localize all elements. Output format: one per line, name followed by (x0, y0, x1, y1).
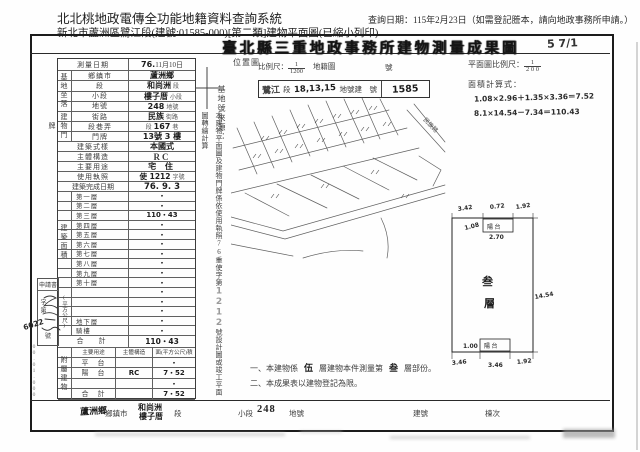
value-handwritten: 和尚洲 (147, 81, 171, 90)
row-value: 段 167 巷 (128, 122, 195, 131)
scale-denominator: 1200 (288, 68, 305, 76)
row-label: 門牌 (71, 132, 128, 141)
row-value: 蘆洲鄉 (128, 71, 195, 80)
annex-col-structure: 主體構造 (115, 348, 152, 357)
license-value: 使 1212 字號 (128, 172, 195, 181)
section-lot-stamp: 鷺江 段 18,13,15 地號建 號 1585 (258, 80, 430, 98)
dim-balcony-depth: 1.08 (464, 222, 480, 232)
table-row: 門牌 13號 3 樓 (58, 132, 195, 142)
handwriting-scribbles (36, 292, 62, 338)
license-label: 使用執照 (58, 172, 128, 181)
style-hw: 本國式 (150, 142, 174, 151)
microfilm-number: 00.01.000 (31, 344, 37, 388)
style-row: 建築式樣 本國式 (58, 142, 195, 152)
value-handwritten: 樓子厝 (144, 92, 168, 101)
dim-top-left: 3.42 (457, 204, 473, 213)
table-row: 段巷弄 段 167 巷 (58, 122, 195, 132)
cadastral-map-sketch: 民族路 (231, 98, 446, 273)
note1-pre: 一、本建物係 (250, 364, 298, 373)
table-row: 第八層 ・ (58, 259, 195, 269)
footer-section-label: 段 (174, 408, 182, 419)
survey-date-row: 測量日期 76. 11月10日 (58, 59, 195, 71)
license-suffix: 字號 (172, 172, 184, 181)
annex-col-area: 面(平方公尺)積 (152, 348, 195, 357)
structure-text: RC (154, 152, 171, 161)
license-row: 使用執照 使 1212 字號 (58, 172, 195, 182)
footer-lot-label: 地號 (289, 408, 304, 419)
scan-edge-line (636, 42, 638, 450)
total-label: 合 計 (58, 336, 128, 347)
table-row: 第一層 ・ (58, 192, 195, 202)
scale-label: 比例尺： (258, 62, 288, 71)
annex-use (71, 379, 115, 389)
room-label-char2: 層 (484, 297, 495, 310)
table-row: ・ (58, 307, 195, 317)
annex-use: 平 台 (71, 358, 115, 368)
floor-area-value: ・ (128, 250, 195, 259)
row-value: 民族 街路 (128, 112, 195, 121)
structure-row: 主體構造 RC (58, 152, 195, 162)
footer-lot-no: 248 (257, 404, 276, 415)
balcony-bottom-label: 陽 台 (484, 342, 498, 350)
note1-hw-storeys: 伍 (304, 364, 313, 374)
annex-use: 合 計 (71, 389, 115, 399)
annex-group-label: 附屬建物 (58, 349, 70, 398)
use-value: 宅 住 (128, 162, 195, 171)
floor-label: 第四層 (71, 221, 128, 230)
survey-date-hw: 76. (141, 60, 155, 69)
table-row: 平 台 ・ (58, 358, 195, 369)
floor-label: 第三層 (71, 211, 128, 220)
value-handwritten: 248 (148, 102, 165, 111)
floor-label: 地下層 (71, 317, 128, 326)
stamp-section-hw: 鷺江 (262, 82, 281, 96)
footer-subsection-label: 小段 (238, 408, 253, 419)
scan-smudge (390, 436, 530, 439)
dim-top-right: 1.92 (515, 202, 531, 211)
survey-date-value: 76. 11月10日 (128, 59, 195, 70)
value-suffix: 街路 (166, 112, 178, 121)
stamp-section-label: 段 (283, 84, 291, 95)
footer-section-hw2: 樓子厝 (139, 411, 163, 422)
floor-label: 騎樓 (71, 326, 128, 335)
sheet-label: 地籍圖 (313, 62, 336, 71)
row-label: 鄉鎮市 (71, 71, 128, 80)
floor-area-value: ・ (128, 298, 195, 307)
floor-area-value: ・ (128, 221, 195, 230)
row-label: 小段 (71, 92, 128, 101)
note1-hw-floor: 叁 (389, 364, 398, 374)
floor-label: 第一層 (71, 192, 128, 201)
floor-area-value: ・ (128, 230, 195, 239)
value-suffix: 小段 (170, 92, 182, 101)
floor-area-value: ・ (128, 259, 195, 268)
complete-value: 76. 9. 3 (128, 182, 195, 191)
table-row: 地下層 ・ (58, 317, 195, 327)
table-row: 段 和尚洲 段 (58, 81, 195, 91)
value-handwritten: 民族 (148, 112, 164, 121)
floor-label: 第十層 (71, 278, 128, 287)
row-value: 和尚洲 段 (128, 81, 195, 90)
plan-scale-num: 1 (531, 59, 534, 66)
row-label: 街路 (71, 112, 128, 121)
floor-area-value: ・ (128, 307, 195, 316)
annex-area: ・ (152, 358, 195, 368)
use-hw: 宅 住 (148, 162, 176, 171)
value-handwritten: 167 (154, 122, 171, 131)
document-title: 臺北縣三重地政事務所建物測量成果圖 (222, 37, 520, 58)
annex-structure: RC (115, 368, 152, 378)
floor-area-value: 110・43 (128, 211, 195, 220)
stamp-building-no-hw: 1585 (392, 83, 419, 95)
balcony-top-label: 陽 台 (487, 223, 501, 231)
license-hw: 使 1212 (139, 172, 170, 181)
structure-label: 主體構造 (58, 152, 128, 161)
annex-area: 7・52 (152, 368, 195, 378)
survey-table: 測量日期 76. 11月10日 鄉鎮市 蘆洲鄉 段 (57, 58, 196, 399)
dim-right: 14.54 (534, 291, 554, 301)
annex-area: 7・52 (152, 389, 195, 399)
table-row: 鄉鎮市 蘆洲鄉 (58, 71, 195, 81)
footer-township-label: 鄉鎮市 (105, 408, 128, 419)
annex-structure (115, 379, 152, 389)
floor-area-value: ・ (128, 240, 195, 249)
annex-structure (115, 389, 152, 399)
table-row: 第十層 ・ (58, 278, 195, 288)
area-group-label: 建築面積 (58, 196, 70, 288)
dim-bottom-1: 3.46 (451, 358, 466, 367)
floor-area-value: ・ (128, 317, 195, 326)
structure-value: RC (128, 152, 195, 161)
annex-header-row: 主要用途 主體構造 面(平方公尺)積 (58, 348, 195, 358)
table-row: 第六層 ・ (58, 240, 195, 250)
annex-area: ・ (152, 379, 195, 389)
floor-area-value: ・ (128, 269, 195, 278)
annex-structure (115, 358, 152, 368)
sheet-no-label: 號 (385, 62, 393, 73)
table-row: 街路 民族 街路 (58, 112, 195, 122)
scan-smudge (300, 431, 342, 433)
style-label: 建築式樣 (58, 142, 128, 151)
table-row: 小段 樓子厝 小段 (58, 92, 195, 102)
table-row: ・ (58, 298, 195, 308)
area-calc-label: 面積計算式： (468, 79, 522, 90)
scale-numerator: 1 (295, 61, 298, 68)
query-date: 查詢日期：115年2月23日（如需登記謄本，請向地政事務所申請。） (368, 13, 633, 26)
floor-area-value: ・ (128, 288, 195, 297)
map-road-label: 民族路 (422, 116, 440, 135)
table-row: 陽 台 RC 7・52 (58, 368, 195, 379)
site-group-label: 基地坐落 (58, 71, 70, 111)
footer-divider (30, 400, 610, 401)
value-handwritten: 蘆洲鄉 (150, 71, 174, 80)
value-suffix: 地號 (166, 102, 178, 111)
handwritten-mark: 5 7/1 (547, 36, 578, 51)
complete-hw: 76. 9. 3 (144, 182, 180, 191)
floor-label: 第二層 (71, 202, 128, 211)
footer-block-label: 棟次 (485, 408, 500, 419)
dim-bottom-balcony: 1.00 (463, 343, 478, 350)
scan-smudge (563, 429, 615, 438)
vnote-hw: 1212 (214, 287, 224, 329)
stamp-building-no-cell: 1585 (381, 81, 429, 97)
row-label: 段巷弄 (71, 122, 128, 131)
style-value: 本國式 (128, 142, 195, 151)
floor-area-value: ・ (128, 202, 195, 211)
footer-township-hw: 蘆洲鄉 (80, 403, 108, 417)
row-value: 樓子厝 小段 (128, 92, 195, 101)
dim-top-mid: 0.72 (489, 202, 504, 211)
annex-use: 陽 台 (71, 368, 115, 378)
table-row: 騎樓 ・ (58, 326, 195, 336)
scan-smudge (95, 433, 285, 436)
floor-area-value: ・ (128, 326, 195, 335)
floor-plan-drawing: 3.42 0.72 1.92 1.08 2.70 14.54 1.00 3.46… (440, 195, 570, 375)
stamp-mid-label: 地號建 號 (339, 84, 377, 95)
note1-mid: 層建物本件測量第 (319, 364, 383, 373)
row-label: 地號 (71, 102, 128, 111)
table-row: 第七層 ・ (58, 250, 195, 260)
annex-col-use: 主要用途 (71, 348, 115, 357)
note-line-2: 二、本成果表以建物登記為限。 (250, 378, 362, 389)
floor-label: 第九層 (71, 269, 128, 278)
table-row: ・ (58, 288, 195, 298)
dim-balcony-width: 2.70 (489, 234, 504, 241)
value-prefix: 段 (146, 122, 152, 131)
location-map-scale: 比例尺：11200 地籍圖 (258, 61, 335, 76)
floor-area-value: ・ (128, 278, 195, 287)
complete-date-row: 建築完成日期 76. 9. 3 (58, 182, 195, 192)
floor-area-value: ・ (128, 192, 195, 201)
location-map-label: 位置圖 (233, 57, 260, 68)
table-row: 第五層 ・ (58, 230, 195, 240)
note-line-1: 一、本建物係 伍 層建物本件測量第 叁 層部份。 (250, 361, 436, 374)
table-row: 第二層 ・ (58, 202, 195, 212)
door-group-label: 建物門牌 (58, 112, 70, 141)
table-row: 第四層 ・ (58, 221, 195, 231)
value-suffix: 巷 (172, 122, 178, 131)
floor-label: 第七層 (71, 250, 128, 259)
table-row: 第九層 ・ (58, 269, 195, 279)
use-label: 主要用途 (58, 162, 128, 171)
application-label: 申請書 (38, 279, 58, 291)
value-suffix: 段 (173, 81, 179, 90)
use-row: 主要用途 宅 住 (58, 162, 195, 172)
row-value: 248 地號 (128, 102, 195, 111)
floor-label (71, 307, 128, 316)
table-row: 合 計 7・52 (58, 389, 195, 400)
floor-label (71, 288, 128, 297)
floor-label: 第五層 (71, 230, 128, 239)
table-row: 地號 248 地號 (58, 102, 195, 112)
plan-scale-label: 平面圖比例尺： (468, 60, 524, 69)
dim-bottom-2: 3.46 (488, 362, 503, 369)
survey-date-label: 測量日期 (58, 59, 128, 70)
table-row: 第三層 110・43 (58, 211, 195, 221)
floor-label: 第八層 (71, 259, 128, 268)
footer-building-label: 建號 (413, 408, 428, 419)
floor-label: 第六層 (71, 240, 128, 249)
table-row: ・ (58, 379, 195, 390)
room-label-char1: 叁 (481, 274, 494, 288)
total-value: 110・43 (128, 336, 195, 347)
stamp-lots-hw: 18,13,15 (293, 83, 335, 95)
plan-scale: 平面圖比例尺：12 0 0 (468, 59, 541, 74)
north-cross-icon (195, 66, 219, 110)
area-calc-line2: 8.1×14.54－7.34＝110.43 (474, 106, 580, 119)
survey-date-rest: 11月10日 (155, 60, 183, 70)
floor-label (71, 298, 128, 307)
note1-suf: 層部份。 (404, 364, 436, 373)
dim-bottom-3: 1.92 (516, 357, 531, 366)
total-row: 合 計 110・43 (58, 336, 195, 348)
plan-scale-den: 2 0 0 (524, 66, 541, 74)
row-value: 13號 3 樓 (128, 132, 195, 141)
value-handwritten: 13號 3 樓 (143, 132, 181, 141)
complete-label: 建築完成日期 (58, 182, 128, 191)
row-label: 段 (71, 81, 128, 90)
land-registry-floorplan-page: { "header": { "system_title": "北北桃地政電傳全功… (0, 0, 640, 452)
